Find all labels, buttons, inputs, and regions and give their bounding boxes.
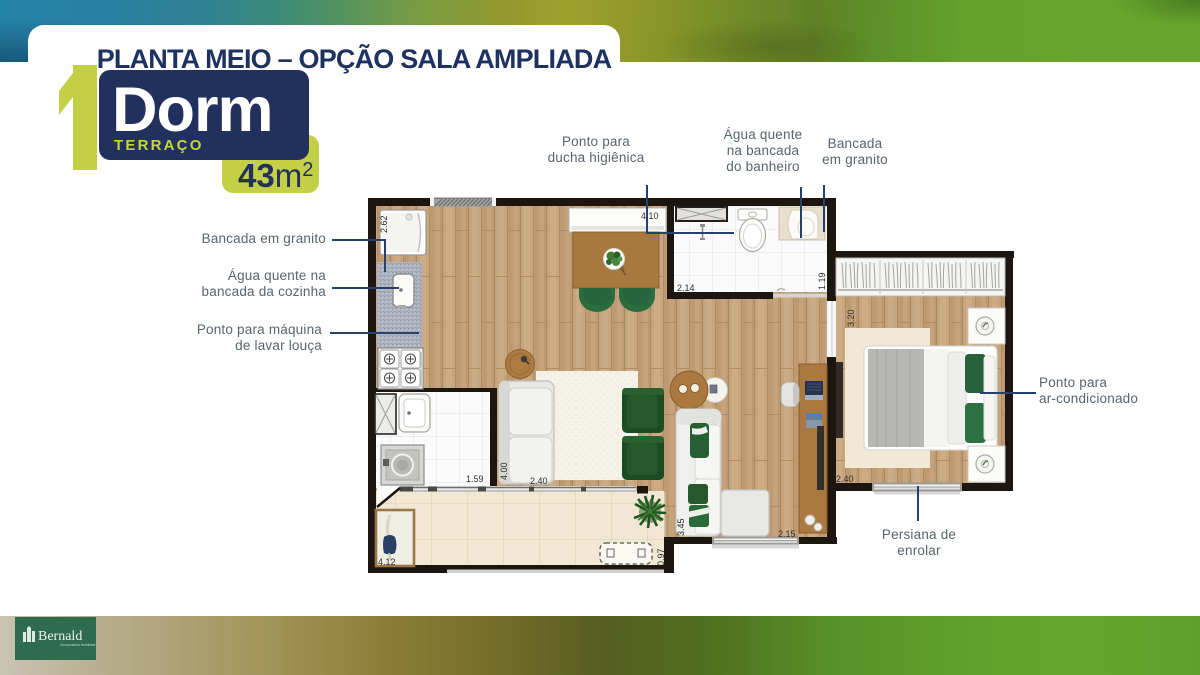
- svg-text:Bernald: Bernald: [38, 629, 82, 644]
- svg-text:2.62: 2.62: [379, 215, 389, 233]
- svg-text:4.12: 4.12: [378, 557, 396, 567]
- svg-text:4.00: 4.00: [499, 462, 509, 480]
- svg-text:Incorporadora Imobiliária: Incorporadora Imobiliária: [60, 643, 95, 647]
- svg-text:2.15: 2.15: [778, 529, 796, 539]
- svg-text:3.20: 3.20: [846, 309, 856, 327]
- svg-text:2.14: 2.14: [677, 283, 695, 293]
- svg-text:1.59: 1.59: [466, 474, 484, 484]
- svg-text:2.40: 2.40: [530, 476, 548, 486]
- svg-text:4.10: 4.10: [641, 211, 659, 221]
- svg-text:1.19: 1.19: [817, 272, 827, 290]
- svg-text:0.97: 0.97: [656, 548, 666, 566]
- svg-text:2.40: 2.40: [836, 474, 854, 484]
- svg-text:3.45: 3.45: [676, 518, 686, 536]
